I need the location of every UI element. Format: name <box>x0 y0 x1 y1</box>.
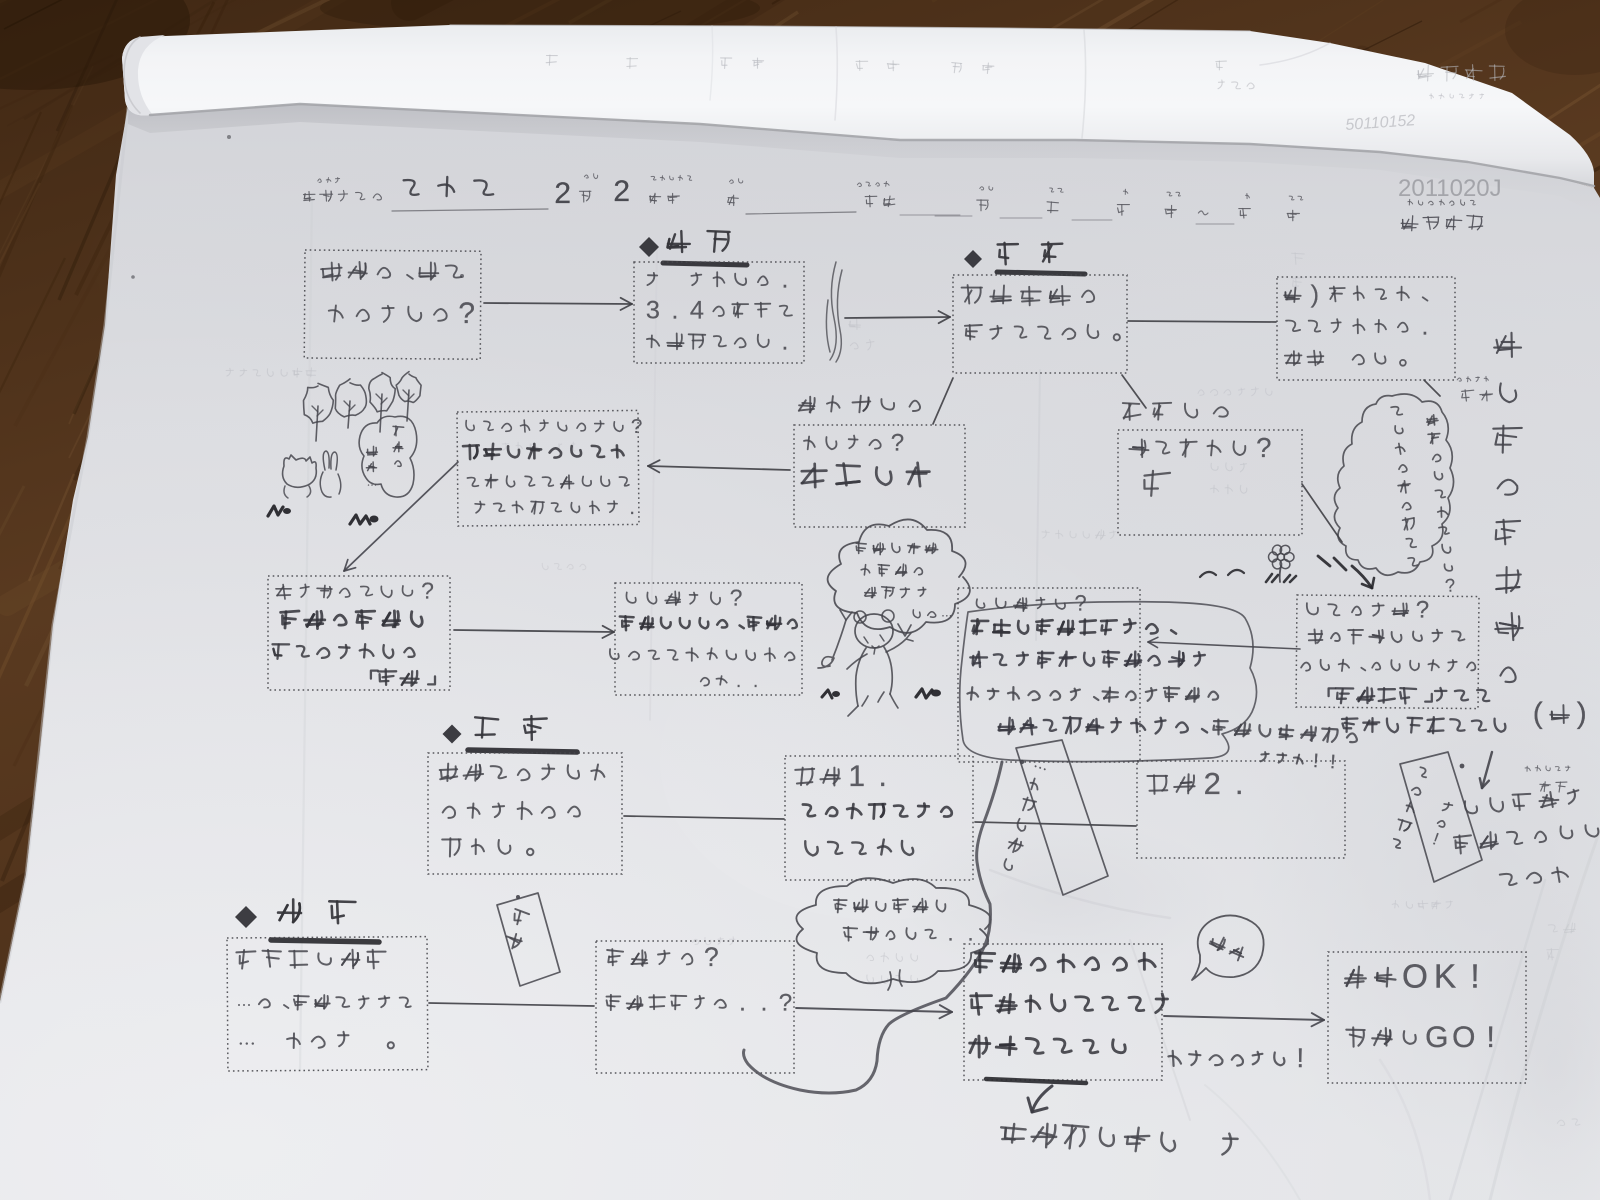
svg-text:!: ! <box>1487 1021 1495 1054</box>
svg-text:O: O <box>1402 959 1428 996</box>
svg-text:!: ! <box>1297 1043 1304 1073</box>
svg-text:!: ! <box>1470 959 1479 996</box>
svg-text:?: ? <box>421 578 434 604</box>
svg-text:?: ? <box>730 585 743 611</box>
svg-text:2011020J: 2011020J <box>1398 175 1502 202</box>
svg-text:.: . <box>1421 312 1428 340</box>
svg-text:G: G <box>1425 1021 1448 1054</box>
svg-text:?: ? <box>891 430 904 457</box>
svg-text:.: . <box>781 327 788 355</box>
svg-text:2: 2 <box>554 177 571 210</box>
svg-text:.: . <box>967 921 973 946</box>
svg-text:): ) <box>1577 697 1587 730</box>
svg-text:?: ? <box>1256 432 1271 463</box>
svg-text:.: . <box>753 670 758 692</box>
svg-text:.: . <box>761 990 768 1017</box>
svg-text:.: . <box>1235 766 1244 801</box>
svg-text:?: ? <box>1444 574 1456 596</box>
svg-text:?: ? <box>1074 591 1086 616</box>
svg-text:?: ? <box>631 415 643 438</box>
svg-text:?: ? <box>1416 597 1429 624</box>
svg-text:?: ? <box>779 990 792 1017</box>
svg-text:?: ? <box>704 942 719 972</box>
svg-text:O: O <box>1452 1021 1475 1054</box>
svg-text:(: ( <box>1533 697 1543 730</box>
svg-text:): ) <box>1311 280 1319 308</box>
svg-text:K: K <box>1434 959 1456 996</box>
svg-text:.: . <box>947 921 953 946</box>
svg-text:3: 3 <box>646 296 660 324</box>
svg-text:2: 2 <box>1204 766 1221 801</box>
svg-text:.: . <box>736 670 741 692</box>
svg-text:.: . <box>781 265 788 293</box>
svg-text:2: 2 <box>613 175 630 208</box>
svg-text:4: 4 <box>690 296 704 324</box>
svg-text:.: . <box>671 296 678 324</box>
svg-text:1: 1 <box>848 760 865 793</box>
svg-text:.: . <box>739 990 746 1017</box>
svg-text:.: . <box>879 760 887 793</box>
svg-text:?: ? <box>458 297 475 330</box>
svg-text:.: . <box>629 496 635 519</box>
